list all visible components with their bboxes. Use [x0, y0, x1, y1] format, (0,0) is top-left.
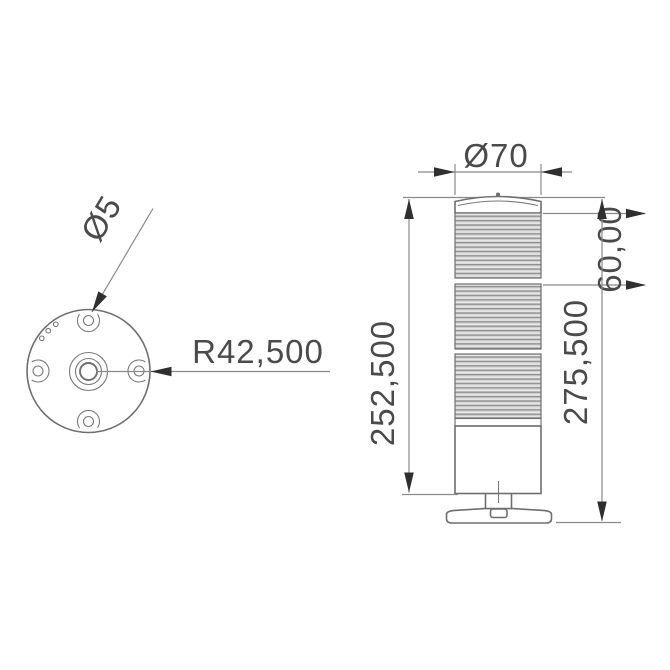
- lens-module-3: [455, 354, 541, 418]
- arrowhead-icon: [597, 502, 607, 522]
- dimension-body-height: 252,500: [364, 199, 458, 495]
- arrowhead-icon: [434, 167, 455, 177]
- label-mounting-radius: R42,500: [192, 333, 324, 370]
- technical-drawing-canvas: Ø5 R42,500: [0, 0, 670, 670]
- arrowhead-icon: [541, 167, 562, 177]
- dimension-outer-diameter: Ø70: [418, 137, 572, 195]
- cap-outline: [455, 197, 541, 214]
- arrowhead-icon: [626, 209, 646, 219]
- arrowhead-icon: [404, 199, 414, 219]
- arrowhead-icon: [92, 291, 107, 312]
- arrowhead-icon: [404, 473, 414, 493]
- arrowhead-icon: [626, 280, 646, 290]
- arrowhead-icon: [151, 367, 172, 377]
- dimension-hole-diameter: Ø5: [73, 189, 153, 312]
- base-top-view: Ø5 R42,500: [27, 189, 330, 433]
- label-hole-diameter: Ø5: [73, 189, 128, 248]
- label-outer-diameter: Ø70: [463, 137, 528, 174]
- lens-module-1: [455, 213, 541, 278]
- tower-front-view: Ø70 60,00 252,500 275,500: [364, 137, 646, 523]
- cap-center-nub: [496, 193, 500, 197]
- body-collar: [455, 419, 541, 427]
- base-latch-tab: [491, 509, 508, 518]
- lens-module-2: [455, 284, 541, 349]
- dimension-module-height: 60,00: [543, 205, 646, 293]
- tower-cap: [455, 193, 541, 214]
- label-body-height: 252,500: [364, 320, 401, 446]
- label-total-height: 275,500: [557, 299, 594, 425]
- label-module-height: 60,00: [591, 205, 628, 293]
